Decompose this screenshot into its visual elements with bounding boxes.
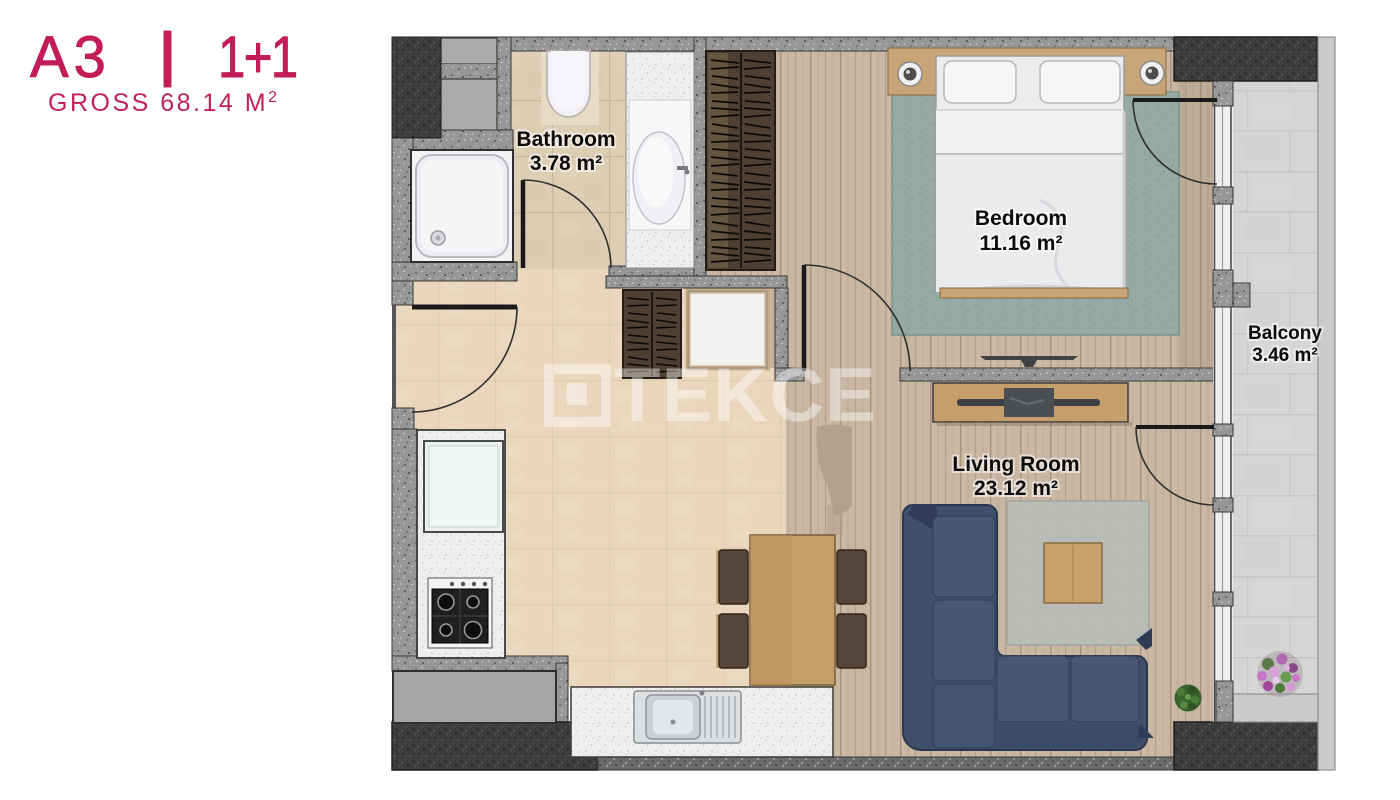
svg-text:Bathroom: Bathroom	[516, 128, 615, 151]
svg-text:23.12 m²: 23.12 m²	[974, 477, 1058, 500]
svg-text:Balcony: Balcony	[1248, 323, 1322, 344]
svg-text:3.46 m²: 3.46 m²	[1252, 345, 1317, 366]
svg-text:A3: A3	[30, 25, 111, 90]
svg-text:11.16 m²: 11.16 m²	[980, 232, 1063, 255]
svg-text:TEKCE: TEKCE	[614, 353, 876, 438]
svg-text:3.78 m²: 3.78 m²	[530, 152, 602, 175]
svg-text:Living Room: Living Room	[952, 453, 1079, 476]
svg-text:1+1: 1+1	[218, 25, 297, 90]
svg-text:GROSS 68.14 M2: GROSS 68.14 M2	[48, 89, 279, 117]
svg-text:Bedroom: Bedroom	[975, 207, 1067, 230]
